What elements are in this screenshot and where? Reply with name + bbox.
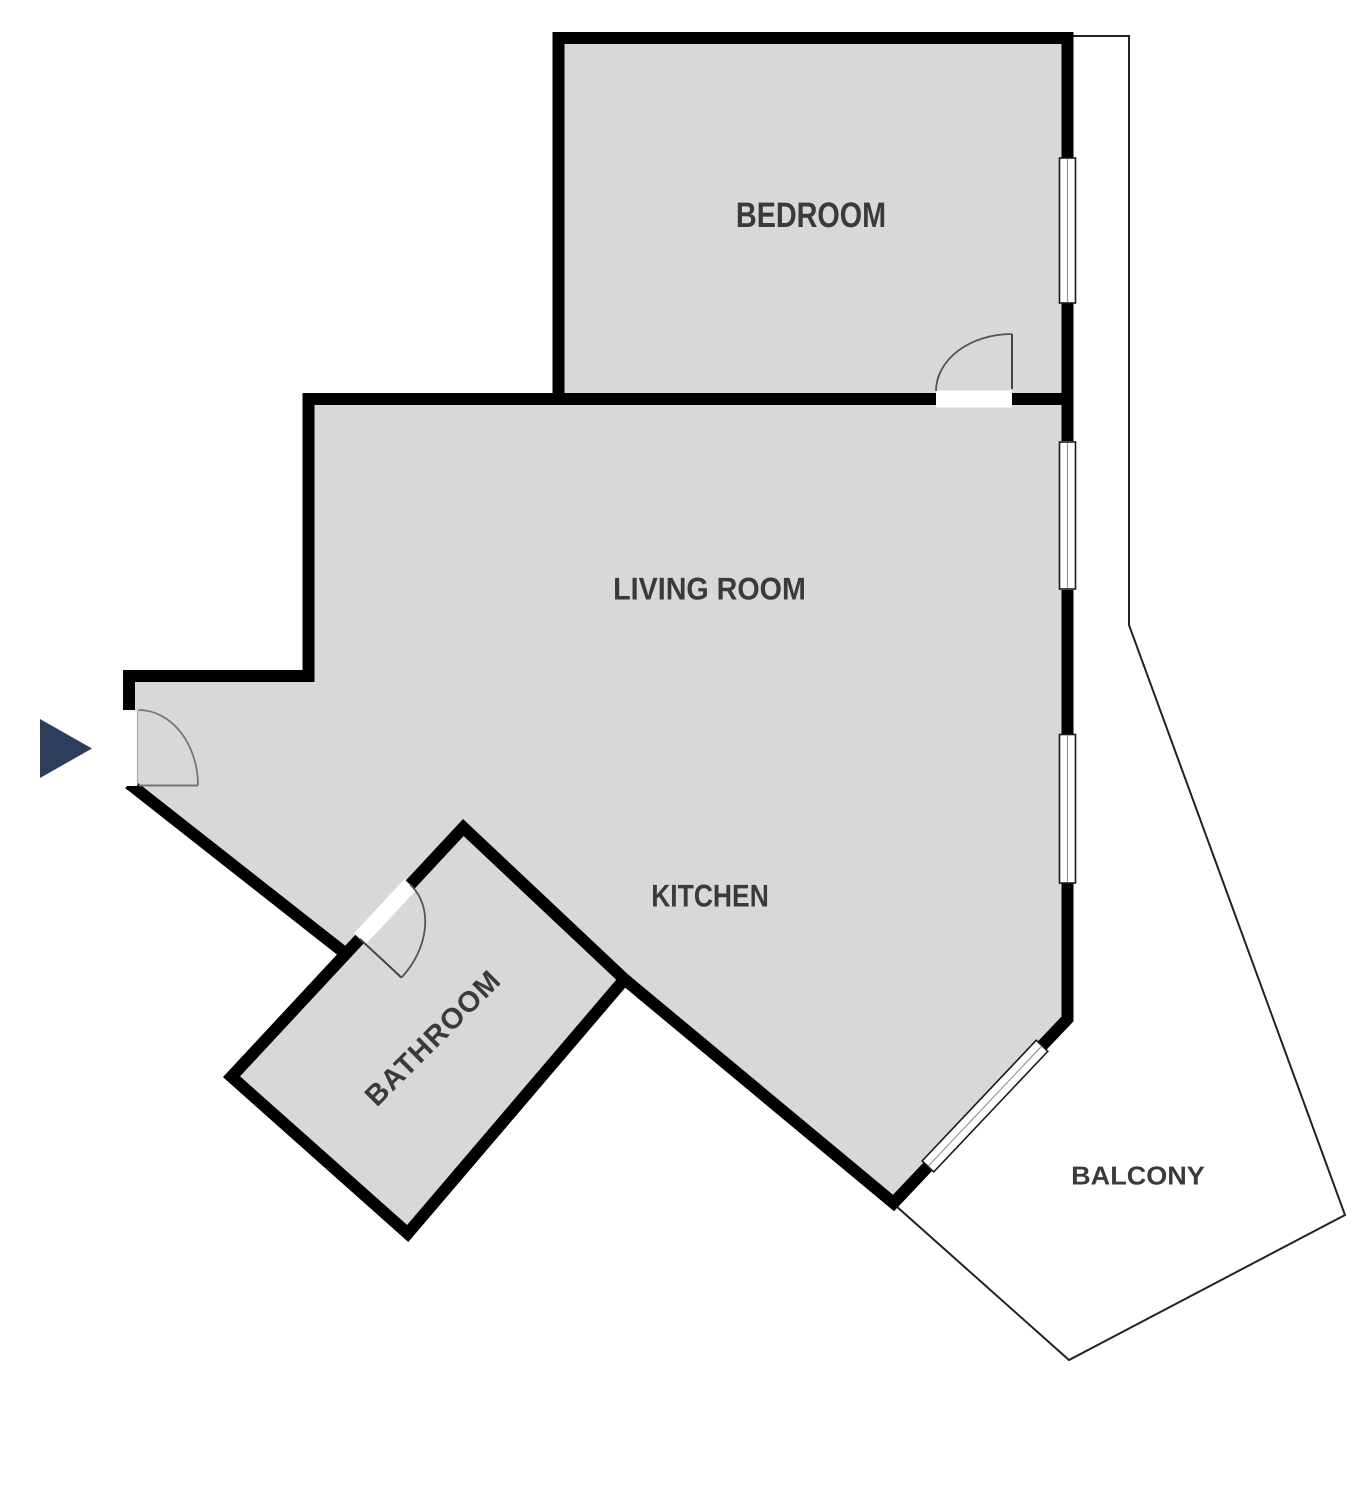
svg-text:BALCONY: BALCONY (1071, 1161, 1205, 1191)
svg-text:BEDROOM: BEDROOM (736, 195, 886, 235)
svg-text:KITCHEN: KITCHEN (651, 878, 769, 914)
svg-text:LIVING ROOM: LIVING ROOM (613, 571, 806, 607)
